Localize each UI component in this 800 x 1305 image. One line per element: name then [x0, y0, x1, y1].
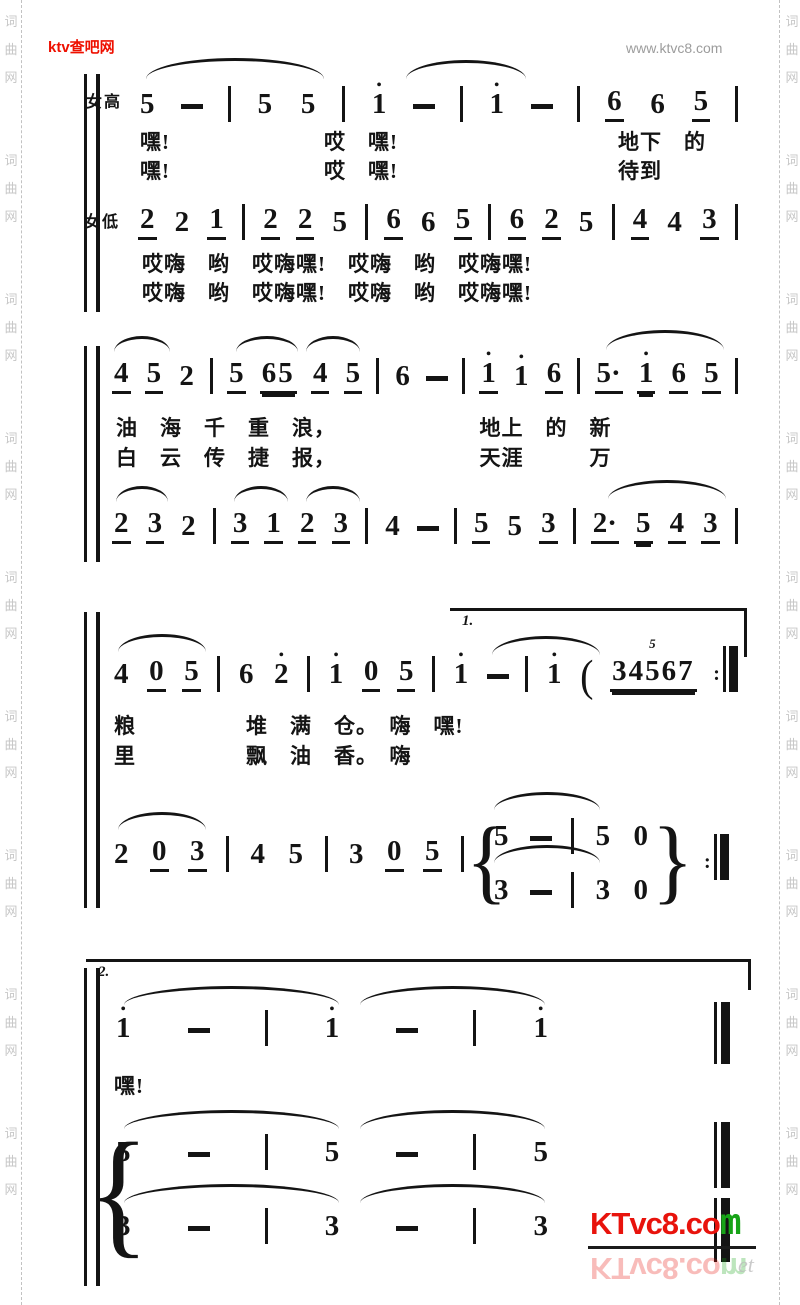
note: 2 [542, 205, 561, 240]
half-note-dash [413, 104, 435, 109]
final-barline-row [714, 1002, 730, 1064]
barline [571, 872, 574, 908]
slur [234, 486, 288, 502]
system1-left-barline [84, 74, 100, 312]
barline [365, 204, 368, 240]
slur [124, 1184, 339, 1203]
border-char: 曲 [783, 870, 800, 898]
note: 3 [114, 1212, 133, 1244]
half-note-dash [417, 526, 439, 531]
note: 4 [311, 359, 330, 394]
border-char: 网 [783, 1037, 800, 1065]
note: 345675 [610, 657, 697, 692]
barline [577, 358, 580, 394]
lyrics-line: 哎嗨 哟 哎嗨嘿! 哎嗨 哟 哎嗨嘿! [142, 248, 532, 278]
note: 1• [531, 1014, 550, 1046]
note: 5 [423, 837, 442, 872]
octave-dot: • [272, 649, 291, 663]
border-char: 网 [783, 342, 800, 370]
volta-2-label: 2. [98, 964, 109, 980]
octave-dot: • [487, 79, 506, 93]
notation-row-soprano-1: 5551•1•665 [138, 80, 738, 122]
note: 1• [452, 660, 471, 692]
octave-dot: • [114, 1003, 133, 1017]
barline [213, 508, 216, 544]
note: 2 [179, 512, 198, 544]
brace-close: } [652, 809, 693, 910]
note: 0 [147, 657, 166, 692]
note: 1• [323, 1014, 342, 1046]
note: 3 [700, 205, 719, 240]
barline [460, 86, 463, 122]
note: 5 [472, 509, 491, 544]
note: 5 [182, 657, 201, 692]
border-char: 词 [783, 703, 800, 731]
note: 5 [634, 509, 653, 544]
border-char: 网 [2, 203, 20, 231]
border-char: 网 [783, 898, 800, 926]
system3-left-barline [84, 612, 100, 908]
border-char-group: 词曲网 [783, 842, 800, 926]
note: 4 [383, 512, 402, 544]
site-name-left: ktv查吧网 [48, 36, 115, 57]
note: 3 [347, 840, 366, 872]
note: 2 [298, 509, 317, 544]
lyrics-line: 油 海 千 重 浪， 地上 的 新 [116, 412, 612, 442]
lyrics-line: 哎嗨 哟 哎嗨嘿! 哎嗨 哟 哎嗨嘿! [142, 277, 532, 307]
watermark-underline [588, 1246, 756, 1249]
border-char-group: 词曲网 [783, 981, 800, 1065]
barline [573, 508, 576, 544]
barline [210, 358, 213, 394]
note: 3 [332, 509, 351, 544]
barline [525, 656, 528, 692]
note: 6 [648, 90, 667, 122]
lyrics-line: 粮 堆 满 仓。 嗨 嘿! [114, 710, 464, 740]
slur [306, 336, 360, 352]
note: 6 [393, 362, 412, 394]
border-char: 网 [2, 898, 20, 926]
border-char: 网 [783, 481, 800, 509]
half-note-dash [530, 890, 552, 895]
barline [432, 656, 435, 692]
slur [116, 486, 168, 502]
barline [735, 358, 738, 394]
border-char: 词 [783, 8, 800, 36]
note: 4 [249, 840, 268, 872]
half-note-dash [181, 104, 203, 109]
thick-bar [721, 1122, 730, 1188]
note: 6 [669, 359, 688, 394]
notation-row-ending2-upper: 555 [114, 1128, 550, 1170]
watermark-reflection-extra: et [738, 1252, 754, 1278]
border-char-group: 词曲网 [783, 286, 800, 370]
note: 5 [323, 1138, 342, 1170]
thin-bar [714, 1122, 717, 1188]
barline [307, 656, 310, 692]
lyrics-line: 嘿! 哎 嘿! 地下 的 [140, 126, 706, 156]
border-char-group: 词曲网 [2, 703, 20, 787]
border-char: 曲 [783, 592, 800, 620]
border-char-group: 词曲网 [2, 8, 20, 92]
octave-dot: • [323, 1003, 342, 1017]
border-char: 曲 [783, 1009, 800, 1037]
barline [376, 358, 379, 394]
note: 3 [531, 1212, 550, 1244]
border-char: 曲 [783, 36, 800, 64]
note: 1• [637, 359, 656, 394]
half-note-dash [188, 1028, 210, 1033]
border-char: 网 [783, 759, 800, 787]
note: 3 [701, 509, 720, 544]
border-char: 网 [783, 64, 800, 92]
octave-dot: • [531, 1003, 550, 1017]
border-char: 网 [2, 64, 20, 92]
note: 1• [114, 1014, 133, 1046]
note: 5 [454, 205, 473, 240]
border-char: 词 [2, 8, 20, 36]
border-char: 词 [783, 981, 800, 1009]
note: 3 [231, 509, 250, 544]
thin-bar [714, 834, 717, 880]
barline [365, 508, 368, 544]
thick-bar [721, 1002, 730, 1064]
barline [735, 86, 738, 122]
note: 2• [272, 660, 291, 692]
repeat-end-barline: : [704, 834, 729, 880]
note: 5 [692, 87, 711, 122]
note: 5· [595, 359, 623, 394]
border-char-group: 词曲网 [2, 286, 20, 370]
note: 1• [370, 90, 389, 122]
barline [488, 204, 491, 240]
border-char: 词 [2, 147, 20, 175]
note: 6 [237, 660, 256, 692]
note: 3 [323, 1212, 342, 1244]
repeat-end-barline: : [713, 646, 738, 692]
half-note-dash [530, 836, 552, 841]
note: 3 [539, 509, 558, 544]
sheet-music-page: 词曲网词曲网词曲网词曲网词曲网词曲网词曲网词曲网词曲网 词曲网词曲网词曲网词曲网… [0, 0, 800, 1305]
border-char-group: 词曲网 [2, 842, 20, 926]
barline [473, 1010, 476, 1046]
repeat-barline-row: : [704, 830, 734, 880]
border-char: 词 [2, 425, 20, 453]
barline [242, 204, 245, 240]
border-char: 网 [2, 481, 20, 509]
border-char: 词 [783, 564, 800, 592]
note: 1• [479, 359, 498, 394]
note: 1• [327, 660, 346, 692]
note: 1• [512, 362, 531, 394]
notation-row-soprano-4: 1•1•1• [114, 1004, 550, 1046]
border-char: 曲 [783, 314, 800, 342]
note: 2 [173, 208, 192, 240]
border-char: 曲 [2, 175, 20, 203]
border-char: 曲 [783, 731, 800, 759]
slur [118, 812, 206, 830]
note: 1• [487, 90, 506, 122]
left-border-watermark-column: 词曲网词曲网词曲网词曲网词曲网词曲网词曲网词曲网词曲网 [2, 8, 20, 1259]
note: 4 [112, 359, 131, 394]
border-char: 词 [2, 1120, 20, 1148]
system2-left-barline [84, 346, 100, 562]
note: 2 [112, 509, 131, 544]
border-char-group: 词曲网 [2, 147, 20, 231]
notation-row-soprano-2: 4525654561•1•65·1•65 [112, 352, 738, 394]
border-char: 曲 [2, 592, 20, 620]
note: 5 [702, 359, 721, 394]
slur [118, 634, 206, 652]
barline [342, 86, 345, 122]
border-char: 网 [2, 620, 20, 648]
border-char: 词 [2, 981, 20, 1009]
barline [226, 836, 229, 872]
barline [473, 1208, 476, 1244]
half-note-dash [531, 104, 553, 109]
note: 1 [207, 205, 226, 240]
notation-row-alto-2: 232312345532·543 [112, 502, 738, 544]
note: 5 [397, 657, 416, 692]
note: 5 [227, 359, 246, 394]
note: 5 [594, 822, 613, 854]
note: 5 [344, 359, 363, 394]
half-note-dash [396, 1226, 418, 1231]
border-char: 曲 [2, 870, 20, 898]
lyrics-line: 里 飘 油 香。 嗨 [114, 740, 412, 770]
repeat-dots: : [704, 852, 711, 872]
octave-dot: • [370, 79, 389, 93]
parenthesis: ( [580, 654, 593, 698]
note: 5 [492, 822, 511, 854]
note: 0 [362, 657, 381, 692]
border-char: 曲 [783, 453, 800, 481]
barline [325, 836, 328, 872]
border-char: 曲 [2, 1009, 20, 1037]
note: 1• [545, 660, 564, 692]
border-char-group: 词曲网 [783, 564, 800, 648]
lyrics-line: 嘿! 哎 嘿! 待到 [140, 155, 662, 185]
note: 6 [508, 205, 527, 240]
half-note-dash [426, 376, 448, 381]
octave-dot: • [512, 351, 531, 365]
notation-row-ending-lower: 330 [492, 866, 650, 908]
note: 5 [114, 1138, 133, 1170]
note: 2 [261, 205, 280, 240]
thin-bar [723, 646, 726, 692]
note: 5 [256, 90, 275, 122]
slur [494, 792, 600, 810]
border-char: 词 [2, 703, 20, 731]
border-char-group: 词曲网 [2, 981, 20, 1065]
tuplet-number: 5 [610, 637, 697, 650]
note: 6 [384, 205, 403, 240]
barline [577, 86, 580, 122]
octave-dot: • [637, 348, 656, 362]
half-note-dash [188, 1226, 210, 1231]
right-border-watermark-column: 词曲网词曲网词曲网词曲网词曲网词曲网词曲网词曲网词曲网 [783, 8, 800, 1259]
note: 2 [112, 840, 131, 872]
note: 5 [577, 208, 596, 240]
notation-row-soprano-3: 40562•1•051•1•(345675: [112, 650, 738, 692]
watermark-red-text: KTvc8.co [590, 1206, 720, 1241]
notation-row-alto-3: 20345305 [112, 830, 464, 872]
half-note-dash [396, 1028, 418, 1033]
note: 0 [632, 822, 651, 854]
final-barline [714, 1002, 730, 1064]
border-char: 曲 [2, 36, 20, 64]
thick-bar [720, 834, 729, 880]
slur [606, 330, 724, 350]
border-char: 曲 [783, 175, 800, 203]
slur [608, 480, 726, 499]
border-char: 词 [2, 564, 20, 592]
repeat-dots: : [713, 664, 720, 684]
border-char-group: 词曲网 [783, 1120, 800, 1204]
border-char: 词 [783, 286, 800, 314]
border-char: 网 [2, 1037, 20, 1065]
border-char: 网 [2, 759, 20, 787]
ktvc8-watermark: KTvc8.com [590, 1202, 741, 1243]
border-char: 曲 [783, 1148, 800, 1176]
border-char: 词 [783, 147, 800, 175]
thin-bar [714, 1002, 717, 1064]
barline [228, 86, 231, 122]
note: 5 [287, 840, 306, 872]
note: 2 [296, 205, 315, 240]
note: 5 [506, 512, 525, 544]
border-char: 词 [783, 1120, 800, 1148]
border-char: 曲 [2, 314, 20, 342]
note: 4 [631, 205, 650, 240]
slur [406, 60, 526, 79]
watermark-green-m: m [720, 1202, 741, 1243]
border-char-group: 词曲网 [783, 8, 800, 92]
barline [462, 358, 465, 394]
octave-dot: • [452, 649, 471, 663]
note: 5 [299, 90, 318, 122]
note: 0 [385, 837, 404, 872]
barline [265, 1134, 268, 1170]
half-note-dash [396, 1152, 418, 1157]
border-char-group: 词曲网 [783, 425, 800, 509]
barline [735, 204, 738, 240]
barline [612, 204, 615, 240]
note: 2· [591, 509, 619, 544]
border-char: 网 [783, 203, 800, 231]
note: 4 [665, 208, 684, 240]
watermark-reflection-red: KTvc8.co [590, 1251, 720, 1286]
border-char: 曲 [2, 731, 20, 759]
note: 2 [138, 205, 157, 240]
lyrics-line: 嘿! [114, 1070, 144, 1100]
half-note-dash [487, 674, 509, 679]
lyrics-line: 白 云 传 捷 报， 天涯 万 [116, 442, 612, 472]
border-char: 网 [2, 342, 20, 370]
note: 65 [260, 359, 297, 394]
note: 0 [632, 876, 651, 908]
slur [360, 1110, 545, 1129]
ktvc8-watermark-reflection: KTvc8.com [590, 1250, 746, 1286]
slur [236, 336, 298, 352]
note: 3 [146, 509, 165, 544]
volta-2-bracket: 2. [86, 959, 751, 990]
note: 6 [545, 359, 564, 394]
border-char-group: 词曲网 [2, 564, 20, 648]
border-char: 词 [2, 286, 20, 314]
final-barline-row [714, 1122, 730, 1188]
left-border-dashed-line [21, 0, 22, 1305]
slur [114, 336, 170, 352]
slur [146, 58, 324, 79]
notation-row-ending2-lower: 333 [114, 1202, 550, 1244]
note: 4 [668, 509, 687, 544]
note: 6 [605, 87, 624, 122]
barline [735, 508, 738, 544]
border-char-group: 词曲网 [783, 147, 800, 231]
note: 2 [177, 362, 196, 394]
note: 6 [419, 208, 438, 240]
border-char: 词 [783, 425, 800, 453]
note: 3 [188, 837, 207, 872]
border-char: 曲 [2, 453, 20, 481]
right-border-dashed-line [779, 0, 780, 1305]
barline [217, 656, 220, 692]
border-char: 网 [783, 620, 800, 648]
half-note-dash [188, 1152, 210, 1157]
barline [265, 1208, 268, 1244]
note: 3 [594, 876, 613, 908]
octave-dot: • [327, 649, 346, 663]
border-char: 网 [783, 1176, 800, 1204]
note: 5 [138, 90, 157, 122]
border-char-group: 词曲网 [2, 425, 20, 509]
note: 0 [150, 837, 169, 872]
border-char: 曲 [2, 1148, 20, 1176]
thick-bar [729, 646, 738, 692]
border-char: 词 [783, 842, 800, 870]
border-char: 网 [2, 1176, 20, 1204]
note: 1 [264, 509, 283, 544]
border-char-group: 词曲网 [2, 1120, 20, 1204]
barline [265, 1010, 268, 1046]
slur [306, 486, 360, 502]
final-barline [714, 1122, 730, 1188]
barline [454, 508, 457, 544]
border-char-group: 词曲网 [783, 703, 800, 787]
note: 3 [492, 876, 511, 908]
barline [461, 836, 464, 872]
octave-dot: • [479, 348, 498, 362]
note: 5 [531, 1138, 550, 1170]
slur [360, 1184, 545, 1203]
slur [124, 1110, 339, 1129]
note: 5 [331, 208, 350, 240]
site-url-right: www.ktvc8.com [626, 40, 722, 56]
barline [473, 1134, 476, 1170]
notation-row-alto-1: 221225665625443 [138, 198, 738, 240]
note: 5 [145, 359, 164, 394]
border-char: 词 [2, 842, 20, 870]
volta-1-label: 1. [462, 613, 473, 629]
note: 4 [112, 660, 131, 692]
